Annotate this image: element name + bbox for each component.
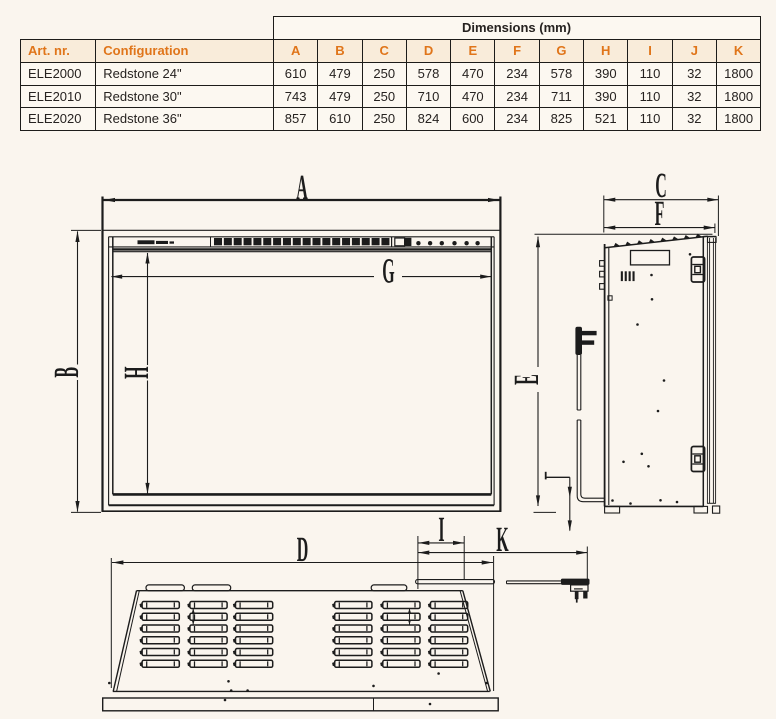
svg-text:B: B bbox=[46, 367, 86, 378]
svg-text:H: H bbox=[116, 366, 156, 379]
svg-text:K: K bbox=[496, 519, 509, 559]
svg-text:E: E bbox=[506, 374, 546, 385]
svg-text:A: A bbox=[296, 167, 308, 207]
svg-text:D: D bbox=[297, 529, 309, 569]
svg-text:G: G bbox=[382, 251, 394, 291]
svg-text:F: F bbox=[655, 193, 665, 233]
svg-text:I: I bbox=[438, 509, 444, 549]
